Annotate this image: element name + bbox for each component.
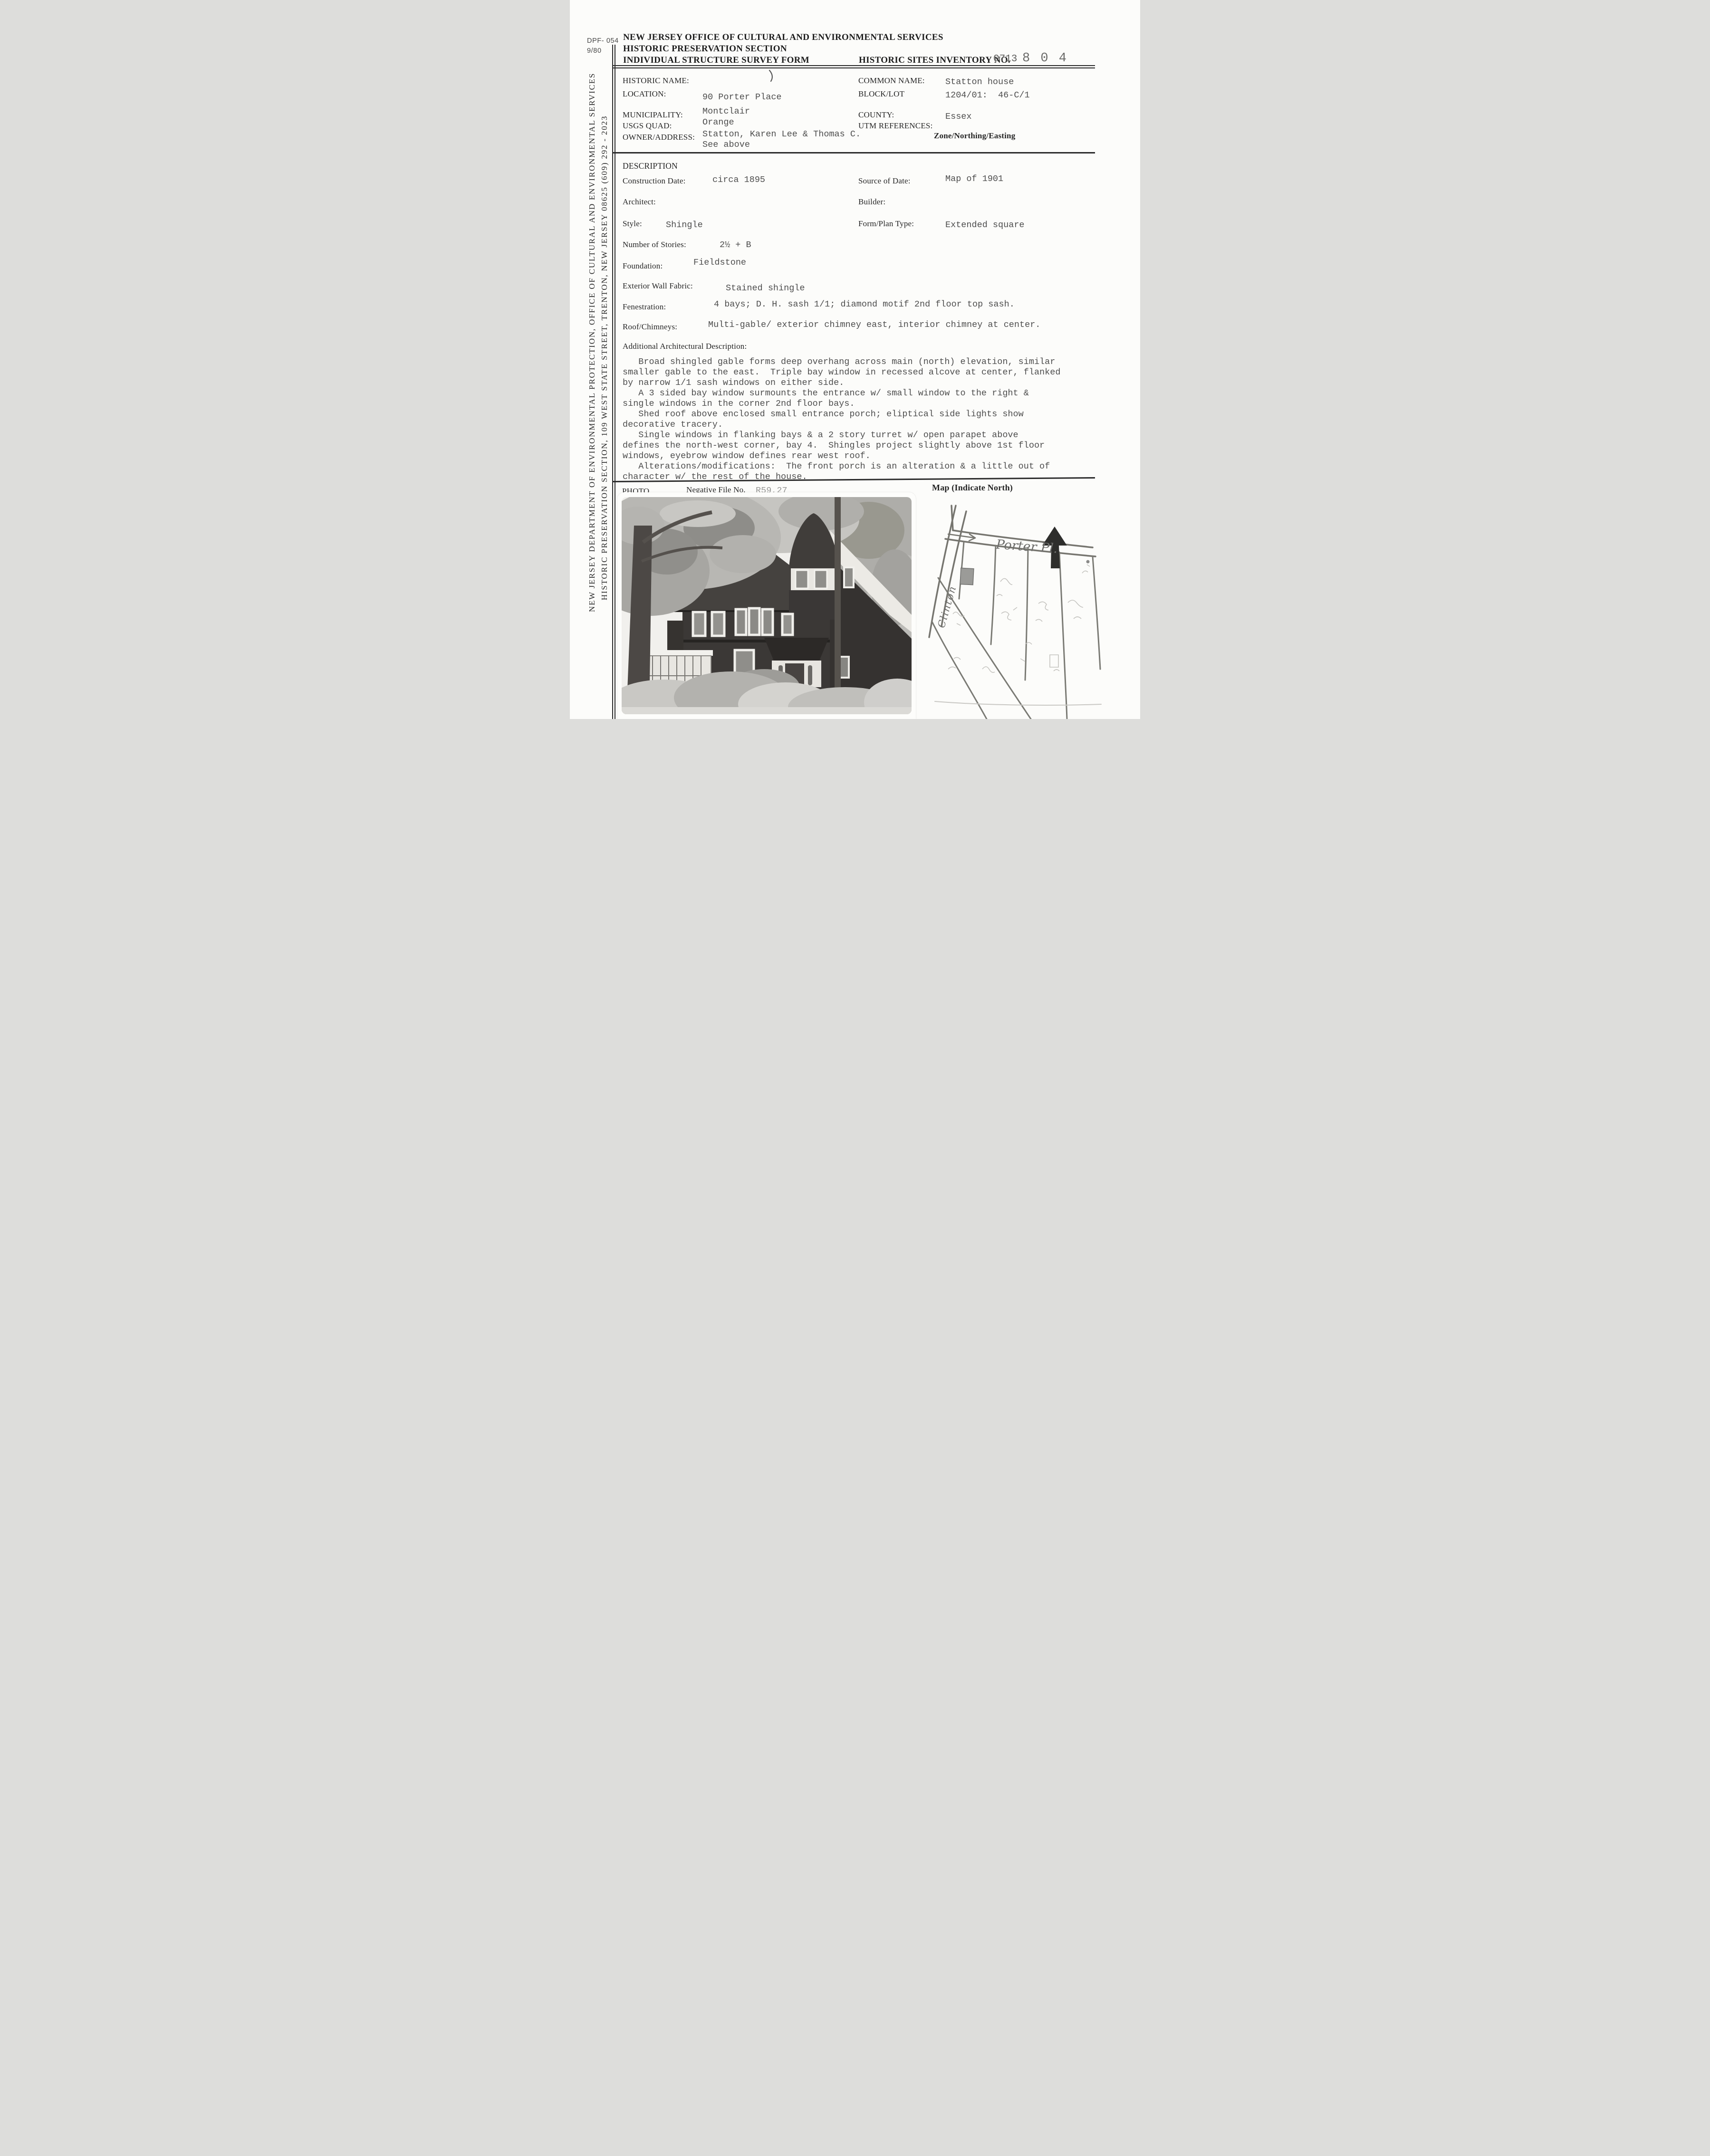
description-paragraph-line: Shed roof above enclosed small entrance … [623,409,1024,419]
field-label-common-name: COMMON NAME: [858,76,925,86]
field-value-owner-address-2: See above [702,140,750,150]
field-value-roof-chimneys: Multi-gable/ exterior chimney east, inte… [708,320,1040,330]
inventory-number-written: 8 0 4 [1022,51,1068,66]
agency-title-line3: INDIVIDUAL STRUCTURE SURVEY FORM [623,55,809,66]
field-value-foundation: Fieldstone [693,258,746,268]
faint-rear-line [935,701,1101,705]
inventory-label: HISTORIC SITES INVENTORY NO. [859,55,1010,66]
field-label-location: LOCATION: [623,89,666,99]
description-paragraph-line: Broad shingled gable forms deep overhang… [623,357,1055,367]
porch-shed-roof [764,638,829,661]
description-paragraph-line: A 3 sided bay window surmounts the entra… [623,388,1029,398]
field-label-block-lot: BLOCK/LOT [858,89,904,99]
field-label-owner-address: OWNER/ADDRESS: [623,133,695,142]
map-dot [1086,560,1090,564]
field-value-usgs-quad: Orange [702,117,734,127]
handwritten-check-mark [768,69,775,83]
description-paragraph-line: single windows in the corner 2nd floor b… [623,399,855,409]
turret-body [789,590,840,620]
field-label-county: COUNTY: [858,110,894,120]
field-label-builder: Builder: [858,197,885,207]
photo-frame [617,492,916,719]
description-paragraph-line: decorative tracery. [623,420,723,430]
field-value-source-of-date: Map of 1901 [945,174,1003,184]
utility-pole [835,497,841,714]
attic-window [844,567,854,587]
field-value-exterior-wall-fabric: Stained shingle [726,283,805,293]
section-divider-description [612,152,1095,153]
field-label-usgs-quad: USGS QUAD: [623,121,672,131]
lot-lines [932,542,1101,719]
field-label-source-of-date: Source of Date: [858,176,911,186]
field-value-number-of-stories: 2½ + B [720,240,751,250]
description-paragraph-line: defines the north-west corner, bay 4. Sh… [623,441,1045,450]
additional-description-label: Additional Architectural Description: [623,342,747,351]
vertical-rule-left [612,45,613,719]
description-paragraph-line: by narrow 1/1 sash windows on either sid… [623,378,844,388]
field-label-construction-date: Construction Date: [623,176,686,186]
field-label-form-plan-type: Form/Plan Type: [858,219,914,229]
description-paragraph-line: smaller gable to the east. Triple bay wi… [623,367,1060,377]
inventory-number-typed: 0713 [993,54,1017,65]
field-value-owner-address: Statton, Karen Lee & Thomas C. [702,129,861,139]
house-photo [622,497,912,714]
description-paragraph-line: Alterations/modifications: The front por… [623,461,1050,471]
map-street-label-clinton: Clinton [935,584,958,629]
form-revision: 9/80 [587,46,602,56]
header-rule-2 [612,67,1095,68]
agency-title-line1: NEW JERSEY OFFICE OF CULTURAL AND ENVIRO… [623,32,943,43]
survey-form-page: NEW JERSEY DEPARTMENT OF ENVIRONMENTAL P… [570,0,1140,719]
field-value-municipality: Montclair [702,106,750,116]
description-paragraph-line: Single windows in flanking bays & a 2 st… [623,430,1018,440]
photo-inner [622,497,912,714]
field-value-block-lot: 1204/01: 46-C/1 [945,90,1030,100]
sidebar-agency-line: NEW JERSEY DEPARTMENT OF ENVIRONMENTAL P… [587,108,597,612]
field-label-utm-references: UTM REFERENCES: [858,121,933,131]
map-house-square [960,568,974,585]
utm-zone-northing-easting-label: Zone/Northing/Easting [934,131,1015,141]
field-label-number-of-stories: Number of Stories: [623,240,686,249]
field-label-foundation: Foundation: [623,261,663,271]
street-lines [929,506,1095,637]
sidebar-address-line: HISTORIC PRESERVATION SECTION, 109 WEST … [600,106,609,610]
sketch-map-drawing: Porter Pl. Clinton [925,502,1111,719]
field-label-architect: Architect: [623,197,656,207]
field-label-historic-name: HISTORIC NAME: [623,76,689,86]
field-value-location: 90 Porter Place [702,92,782,102]
field-value-fenestration: 4 bays; D. H. sash 1/1; diamond motif 2n… [714,299,1015,309]
form-number: DPF- 054 [587,36,619,46]
description-section-title: DESCRIPTION [623,161,678,171]
field-value-common-name: Statton house [945,77,1014,87]
field-label-municipality: MUNICIPALITY: [623,110,683,120]
field-label-exterior-wall-fabric: Exterior Wall Fabric: [623,281,693,291]
field-label-style: Style: [623,219,642,229]
field-value-county: Essex [945,112,972,122]
field-value-construction-date: circa 1895 [712,175,765,185]
field-value-style: Shingle [666,220,703,230]
field-value-form-plan-type: Extended square [945,220,1025,230]
sketch-map: Porter Pl. Clinton [925,502,1111,719]
field-label-fenestration: Fenestration: [623,302,666,312]
field-label-roof-chimneys: Roof/Chimneys: [623,322,677,332]
sidelight-right [808,665,812,685]
map-label: Map (Indicate North) [932,483,1013,493]
description-paragraph-line: windows, eyebrow window defines rear wes… [623,451,871,461]
header-rule-1 [612,65,1095,66]
agency-title-line2: HISTORIC PRESERVATION SECTION [623,44,787,54]
vertical-rule-right [615,45,615,719]
